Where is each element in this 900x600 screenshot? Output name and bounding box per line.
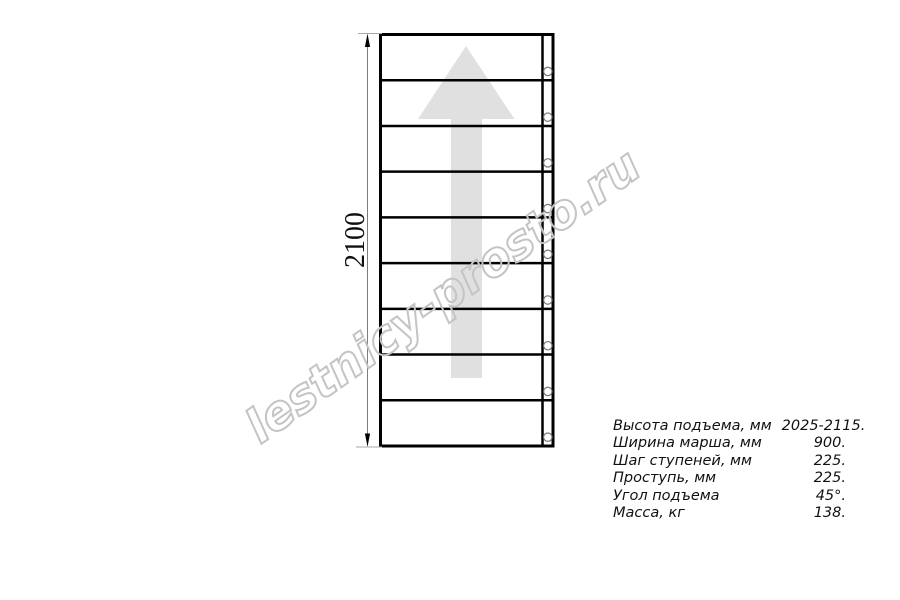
spec-label: Высота подъема, мм (613, 418, 772, 435)
bolt-circle (544, 387, 552, 395)
spec-row-step-pitch: Шаг ступеней, мм 225. (613, 453, 846, 470)
dimension-arrow-up-icon (365, 34, 370, 47)
bolt-circle (544, 342, 552, 350)
spec-label: Шаг ступеней, мм (613, 453, 752, 470)
spec-value: 225. (814, 470, 846, 487)
dimension-arrow-down-icon (365, 434, 370, 447)
spec-value: 225. (814, 453, 846, 470)
watermark-text: lestnicy-prosto.ru (235, 138, 650, 454)
spec-row-tread: Проступь, мм 225. (613, 470, 846, 487)
spec-value: 900. (814, 435, 846, 452)
spec-label: Проступь, мм (613, 470, 716, 487)
spec-row-width: Ширина марша, мм 900. (613, 435, 846, 452)
spec-row-height: Высота подъема, мм 2025-2115. (613, 418, 846, 435)
spec-row-angle: Угол подъема 45°. (613, 488, 846, 505)
bolt-circle (544, 159, 552, 167)
spec-label: Ширина марша, мм (613, 435, 762, 452)
spec-value: 45°. (816, 488, 846, 505)
bolt-circle (544, 67, 552, 75)
drawing-canvas: 2100 lestnicy-prosto.ru Высота подъема, … (0, 0, 900, 600)
bolt-circle (544, 433, 552, 441)
spec-row-mass: Масса, кг 138. (613, 505, 846, 522)
dimension-label: 2100 (340, 212, 371, 268)
bolt-circle (544, 113, 552, 121)
spec-value: 138. (814, 505, 846, 522)
spec-label: Угол подъема (613, 488, 720, 505)
spec-value: 2025-2115. (782, 418, 866, 435)
spec-label: Масса, кг (613, 505, 685, 522)
specs-table: Высота подъема, мм 2025-2115. Ширина мар… (613, 418, 846, 522)
bolt-circle (544, 296, 552, 304)
